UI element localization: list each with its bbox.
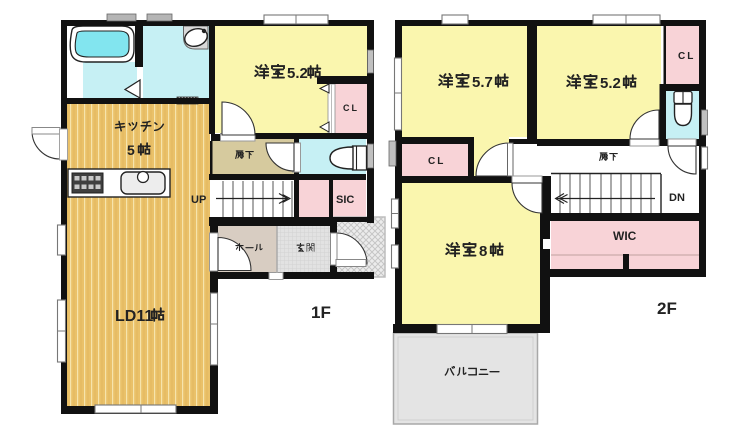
svg-text:CL: CL (343, 103, 359, 113)
svg-text:CL: CL (428, 156, 445, 167)
svg-text:5.7: 5.7 (472, 74, 493, 91)
svg-text:UP: UP (191, 194, 206, 206)
svg-text:2F: 2F (657, 299, 677, 318)
svg-text:CL: CL (678, 51, 695, 62)
svg-text:1F: 1F (311, 303, 331, 322)
svg-text:5: 5 (127, 142, 135, 158)
svg-text:SIC: SIC (336, 194, 354, 206)
svg-text:8: 8 (479, 243, 487, 260)
svg-text:DN: DN (669, 192, 685, 204)
svg-text:WIC: WIC (613, 229, 637, 243)
svg-text:5.2: 5.2 (287, 65, 308, 82)
svg-text:5.2: 5.2 (600, 75, 621, 92)
svg-text:LD11: LD11 (115, 308, 153, 325)
